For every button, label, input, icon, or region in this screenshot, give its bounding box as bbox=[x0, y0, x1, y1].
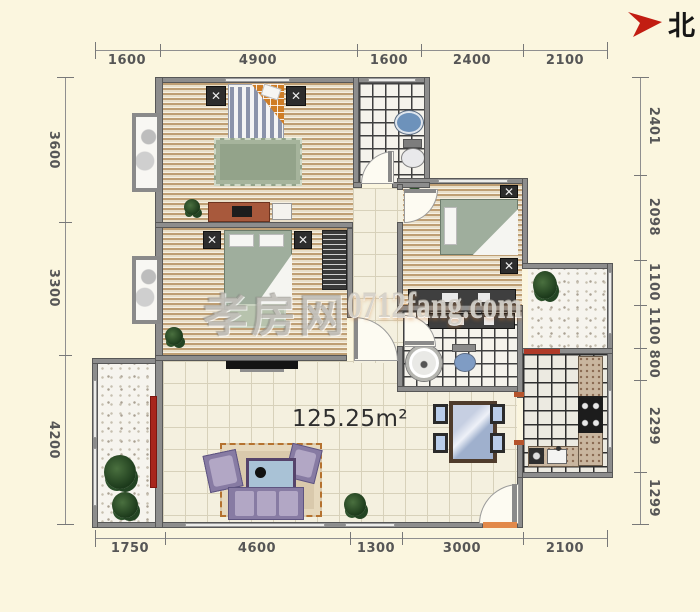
floor-plan: 1600 4900 1600 2400 2100 1750 4600 1300 … bbox=[0, 0, 700, 612]
sofa-cushion bbox=[235, 491, 254, 516]
plant bbox=[344, 493, 366, 516]
dimension-tick bbox=[634, 260, 647, 261]
dimension-tick bbox=[402, 532, 403, 545]
wall bbox=[517, 311, 523, 398]
window bbox=[608, 390, 612, 448]
sofa-cushion bbox=[279, 491, 298, 516]
dining-chair bbox=[433, 404, 448, 424]
appliance bbox=[529, 448, 544, 464]
dimension-label: 2100 bbox=[546, 541, 584, 556]
kettle bbox=[255, 467, 266, 478]
nightstand bbox=[286, 86, 306, 106]
washbasin bbox=[406, 345, 442, 381]
window bbox=[93, 448, 97, 506]
chair-seat bbox=[493, 436, 502, 450]
kitchen-sink bbox=[547, 449, 567, 464]
chair-seat bbox=[493, 407, 502, 421]
balcony-sill bbox=[524, 349, 560, 354]
window bbox=[185, 523, 325, 527]
window bbox=[438, 179, 508, 183]
dimension-label: 1300 bbox=[357, 541, 395, 556]
dining-chair bbox=[490, 433, 505, 453]
door-leaf bbox=[354, 317, 358, 359]
wall bbox=[397, 222, 403, 311]
dining-chair bbox=[490, 404, 505, 424]
tv-stand bbox=[240, 369, 284, 372]
window bbox=[368, 78, 416, 82]
dimension-tick bbox=[421, 44, 422, 57]
dimension-label: 3000 bbox=[443, 541, 481, 556]
wall bbox=[92, 358, 157, 364]
nightstand bbox=[500, 258, 518, 274]
dimension-label: 2401 bbox=[646, 107, 661, 145]
dimension-label: 2400 bbox=[453, 53, 491, 68]
double-bed bbox=[224, 230, 292, 310]
wall bbox=[397, 311, 403, 318]
dimension-tick bbox=[57, 77, 74, 78]
dimension-line bbox=[95, 50, 608, 51]
sink bbox=[395, 111, 423, 134]
dimension-tick bbox=[634, 305, 647, 306]
dimension-label: 2100 bbox=[546, 53, 584, 68]
wall bbox=[155, 355, 347, 361]
dimension-label: 1600 bbox=[370, 53, 408, 68]
wall bbox=[517, 442, 523, 478]
wall bbox=[347, 228, 353, 318]
bed-pillow bbox=[444, 207, 457, 245]
window bbox=[225, 78, 290, 82]
faucet bbox=[556, 446, 561, 451]
dimension-label: 4200 bbox=[46, 421, 61, 459]
wall bbox=[397, 184, 403, 190]
plant bbox=[104, 455, 136, 489]
door-leaf bbox=[404, 189, 436, 193]
bed-pillow bbox=[229, 234, 254, 247]
entry-sill bbox=[483, 522, 517, 528]
dimension-label: 800 bbox=[646, 350, 661, 379]
dimension-line bbox=[95, 538, 608, 539]
nightstand bbox=[294, 231, 312, 249]
desk-chair bbox=[272, 203, 292, 220]
dimension-tick bbox=[523, 44, 524, 57]
door-frame-mark bbox=[514, 440, 524, 445]
dimension-tick bbox=[357, 44, 358, 57]
toilet-tank bbox=[403, 139, 422, 148]
plant bbox=[112, 492, 138, 518]
dimension-line bbox=[640, 77, 641, 524]
rug bbox=[228, 304, 286, 328]
nightstand bbox=[500, 185, 518, 198]
dimension-tick bbox=[634, 175, 647, 176]
vanity bbox=[428, 313, 515, 329]
wall bbox=[522, 263, 613, 269]
dimension-tick bbox=[165, 532, 166, 545]
plant bbox=[165, 327, 183, 345]
toilet bbox=[454, 353, 476, 372]
north-label: 北 bbox=[668, 13, 695, 40]
door-leaf bbox=[404, 341, 434, 345]
dimension-label: 2299 bbox=[646, 407, 661, 445]
wall bbox=[397, 386, 523, 392]
chair-seat bbox=[436, 436, 445, 450]
wall bbox=[353, 77, 359, 188]
dimension-tick bbox=[350, 532, 351, 545]
bay-window bbox=[132, 256, 161, 324]
dimension-tick bbox=[634, 380, 647, 381]
dimension-label: 3300 bbox=[46, 269, 61, 307]
dimension-label: 4600 bbox=[238, 541, 276, 556]
bed-pillow bbox=[259, 234, 284, 247]
wall bbox=[522, 178, 528, 269]
wall bbox=[397, 305, 523, 311]
bay-window bbox=[132, 113, 161, 192]
nightstand bbox=[206, 86, 226, 106]
rug bbox=[214, 138, 302, 186]
plant bbox=[533, 271, 557, 299]
toilet bbox=[401, 148, 425, 168]
dimension-label: 4900 bbox=[239, 53, 277, 68]
stove bbox=[578, 396, 603, 433]
dining-chair bbox=[433, 433, 448, 453]
dimension-label: 1750 bbox=[111, 541, 149, 556]
dimension-tick bbox=[59, 355, 72, 356]
dimension-tick bbox=[523, 532, 524, 545]
window bbox=[93, 380, 97, 438]
toilet-tank bbox=[452, 344, 476, 352]
nightstand bbox=[203, 231, 221, 249]
sofa-cushion bbox=[257, 491, 276, 516]
dimension-tick bbox=[160, 44, 161, 57]
wall bbox=[424, 77, 430, 184]
dimension-tick bbox=[57, 524, 74, 525]
window bbox=[608, 272, 612, 334]
window bbox=[345, 523, 395, 527]
dimension-label: 1299 bbox=[646, 479, 661, 517]
tv bbox=[226, 361, 298, 369]
dimension-tick bbox=[632, 524, 649, 525]
wall bbox=[517, 472, 613, 478]
balcony-door-frame bbox=[150, 396, 157, 488]
chair-seat bbox=[436, 407, 445, 421]
dimension-line bbox=[65, 77, 66, 524]
area-label: 125.25m² bbox=[292, 406, 408, 432]
dimension-tick bbox=[634, 472, 647, 473]
dimension-tick bbox=[607, 530, 608, 547]
dimension-label: 2098 bbox=[646, 198, 661, 236]
desk bbox=[208, 202, 270, 222]
dimension-label: 1100 bbox=[646, 307, 661, 345]
dimension-tick bbox=[607, 42, 608, 59]
wall bbox=[155, 222, 353, 228]
dimension-label: 1100 bbox=[646, 263, 661, 301]
door-frame-mark bbox=[514, 392, 524, 397]
laptop bbox=[232, 206, 252, 217]
dimension-tick bbox=[59, 222, 72, 223]
dimension-tick bbox=[632, 77, 649, 78]
dimension-label: 3600 bbox=[46, 131, 61, 169]
north-indicator: 北 bbox=[627, 9, 695, 43]
dresser bbox=[408, 289, 516, 306]
door-leaf bbox=[512, 484, 517, 522]
sofa bbox=[228, 487, 304, 520]
sofa-cushion bbox=[208, 455, 237, 487]
dimension-label: 1600 bbox=[108, 53, 146, 68]
wardrobe bbox=[322, 230, 347, 290]
door-leaf bbox=[388, 151, 392, 182]
dimension-tick bbox=[95, 42, 96, 59]
plant bbox=[184, 199, 200, 215]
north-arrow-icon bbox=[627, 9, 665, 43]
single-bed bbox=[440, 199, 518, 255]
dimension-tick bbox=[95, 530, 96, 547]
